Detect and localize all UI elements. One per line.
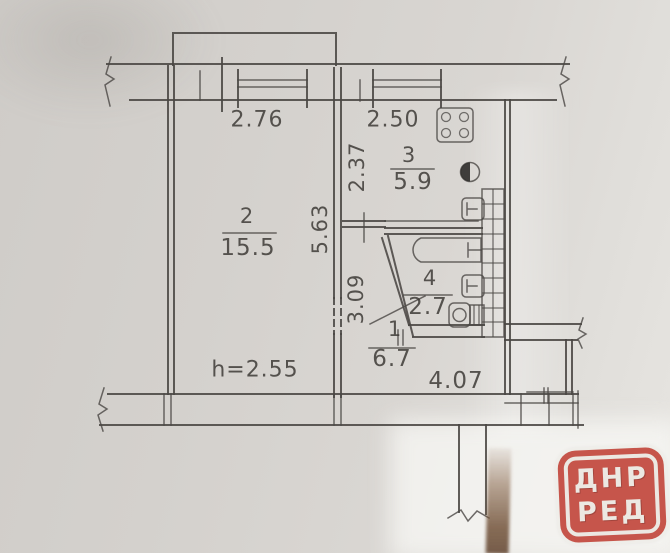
break-mark-entry xyxy=(578,318,586,348)
room4-area: 2.7 xyxy=(408,294,448,320)
dim-room2-top-width-label: 2.76 xyxy=(231,108,284,133)
dim-kitchen-top-width-label: 2.50 xyxy=(367,108,420,133)
vent-shaft xyxy=(482,189,504,337)
stamp-text-line2: РЕД xyxy=(576,493,649,529)
window-kitchen xyxy=(373,70,441,107)
dim-room2-depth-label: 5.63 xyxy=(308,204,332,255)
stove-icon xyxy=(437,108,473,142)
room1-number: 1 xyxy=(388,317,402,341)
sink-icon xyxy=(461,163,480,182)
room1-area: 6.7 xyxy=(372,346,412,372)
dim-kitchen-depth-label: 2.37 xyxy=(345,142,369,193)
watermark-stamp: ДНР РЕД xyxy=(557,447,667,544)
left-exterior-wall xyxy=(168,66,174,394)
dim-hall-depth-label: 3.09 xyxy=(344,274,368,325)
toilet-icon xyxy=(449,303,484,327)
washbasin-kitchen-icon xyxy=(462,198,484,220)
dim-hall-bottom-width-label: 4.07 xyxy=(428,368,483,394)
room4-number: 4 xyxy=(423,266,437,290)
stamp-text-line1: ДНР xyxy=(573,460,650,496)
room2-area: 15.5 xyxy=(220,235,275,261)
break-mark-bottom xyxy=(448,510,489,521)
washbasin-bathroom-icon xyxy=(462,275,484,297)
window-room2 xyxy=(238,70,307,107)
ceiling-height-label: h=2.55 xyxy=(211,358,298,383)
bathtub-icon xyxy=(413,238,481,262)
room3-area: 5.9 xyxy=(393,169,433,195)
floorplan-photo: 2.76 2.50 2.37 5.63 3.09 4.07 h=2.55 2 1… xyxy=(0,0,670,553)
room3-number: 3 xyxy=(402,143,416,167)
balcony-outline xyxy=(173,33,336,65)
room2-number: 2 xyxy=(240,204,254,228)
